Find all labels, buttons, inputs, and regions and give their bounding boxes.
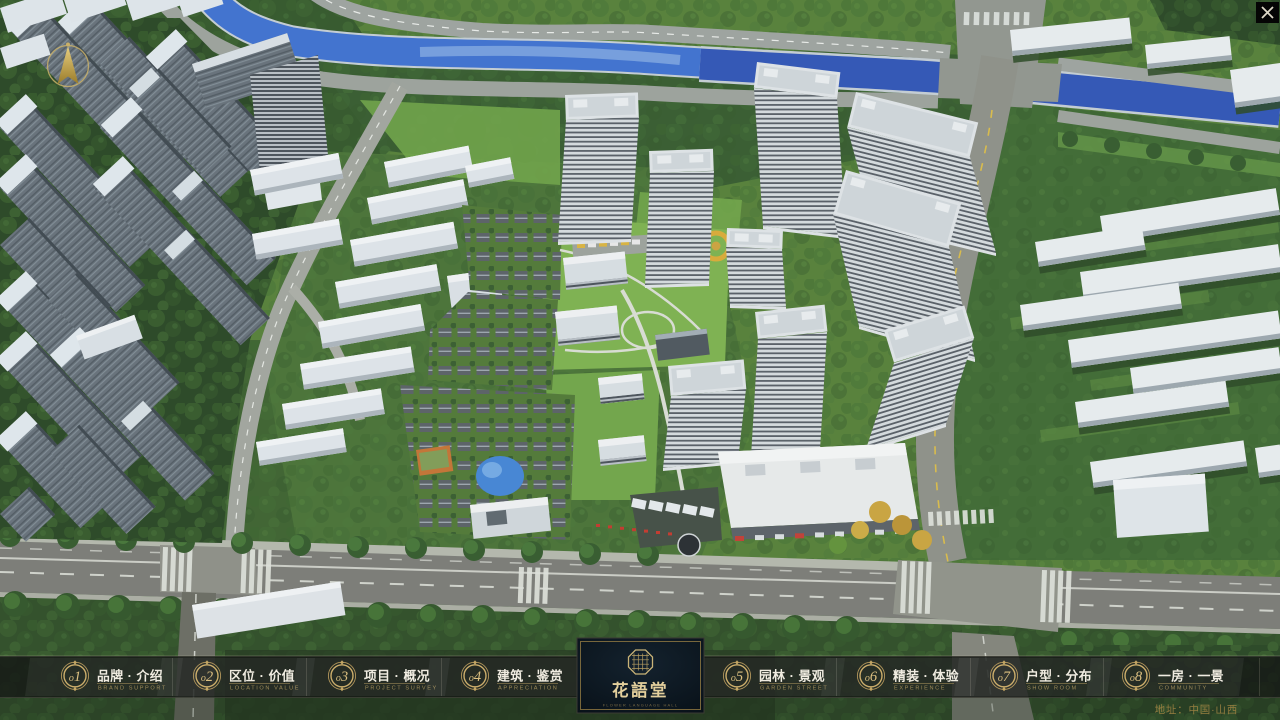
svg-text:一房 · 一景: 一房 · 一景 — [1158, 669, 1224, 684]
svg-text:GARDEN STREET: GARDEN STREET — [760, 686, 828, 692]
svg-text:区位 · 价值: 区位 · 价值 — [229, 669, 295, 684]
svg-text:建筑 · 鉴赏: 建筑 · 鉴赏 — [497, 669, 563, 684]
svg-text:园林 · 景观: 园林 · 景观 — [759, 669, 825, 684]
svg-text:EXPERIENCE: EXPERIENCE — [894, 686, 946, 692]
svg-text:BRAND SUPPORT: BRAND SUPPORT — [98, 686, 167, 692]
svg-text:地址：中国·山西: 地址：中国·山西 — [1155, 703, 1238, 716]
svg-text:FLOWER LANGUAGE HALL: FLOWER LANGUAGE HALL — [603, 703, 679, 708]
svg-text:户型 · 分布: 户型 · 分布 — [1026, 669, 1092, 684]
svg-text:精装 · 体验: 精装 · 体验 — [893, 669, 959, 684]
svg-text:SHOW ROOM: SHOW ROOM — [1027, 686, 1078, 692]
svg-text:花語堂: 花語堂 — [612, 680, 669, 700]
svg-text:项目 · 概况: 项目 · 概况 — [364, 669, 430, 684]
svg-text:品牌 · 介绍: 品牌 · 介绍 — [97, 669, 163, 684]
svg-text:APPRECIATION: APPRECIATION — [498, 686, 558, 692]
svg-text:LOCATION VALUE: LOCATION VALUE — [230, 686, 300, 692]
svg-text:COMMUNITY: COMMUNITY — [1159, 686, 1208, 692]
